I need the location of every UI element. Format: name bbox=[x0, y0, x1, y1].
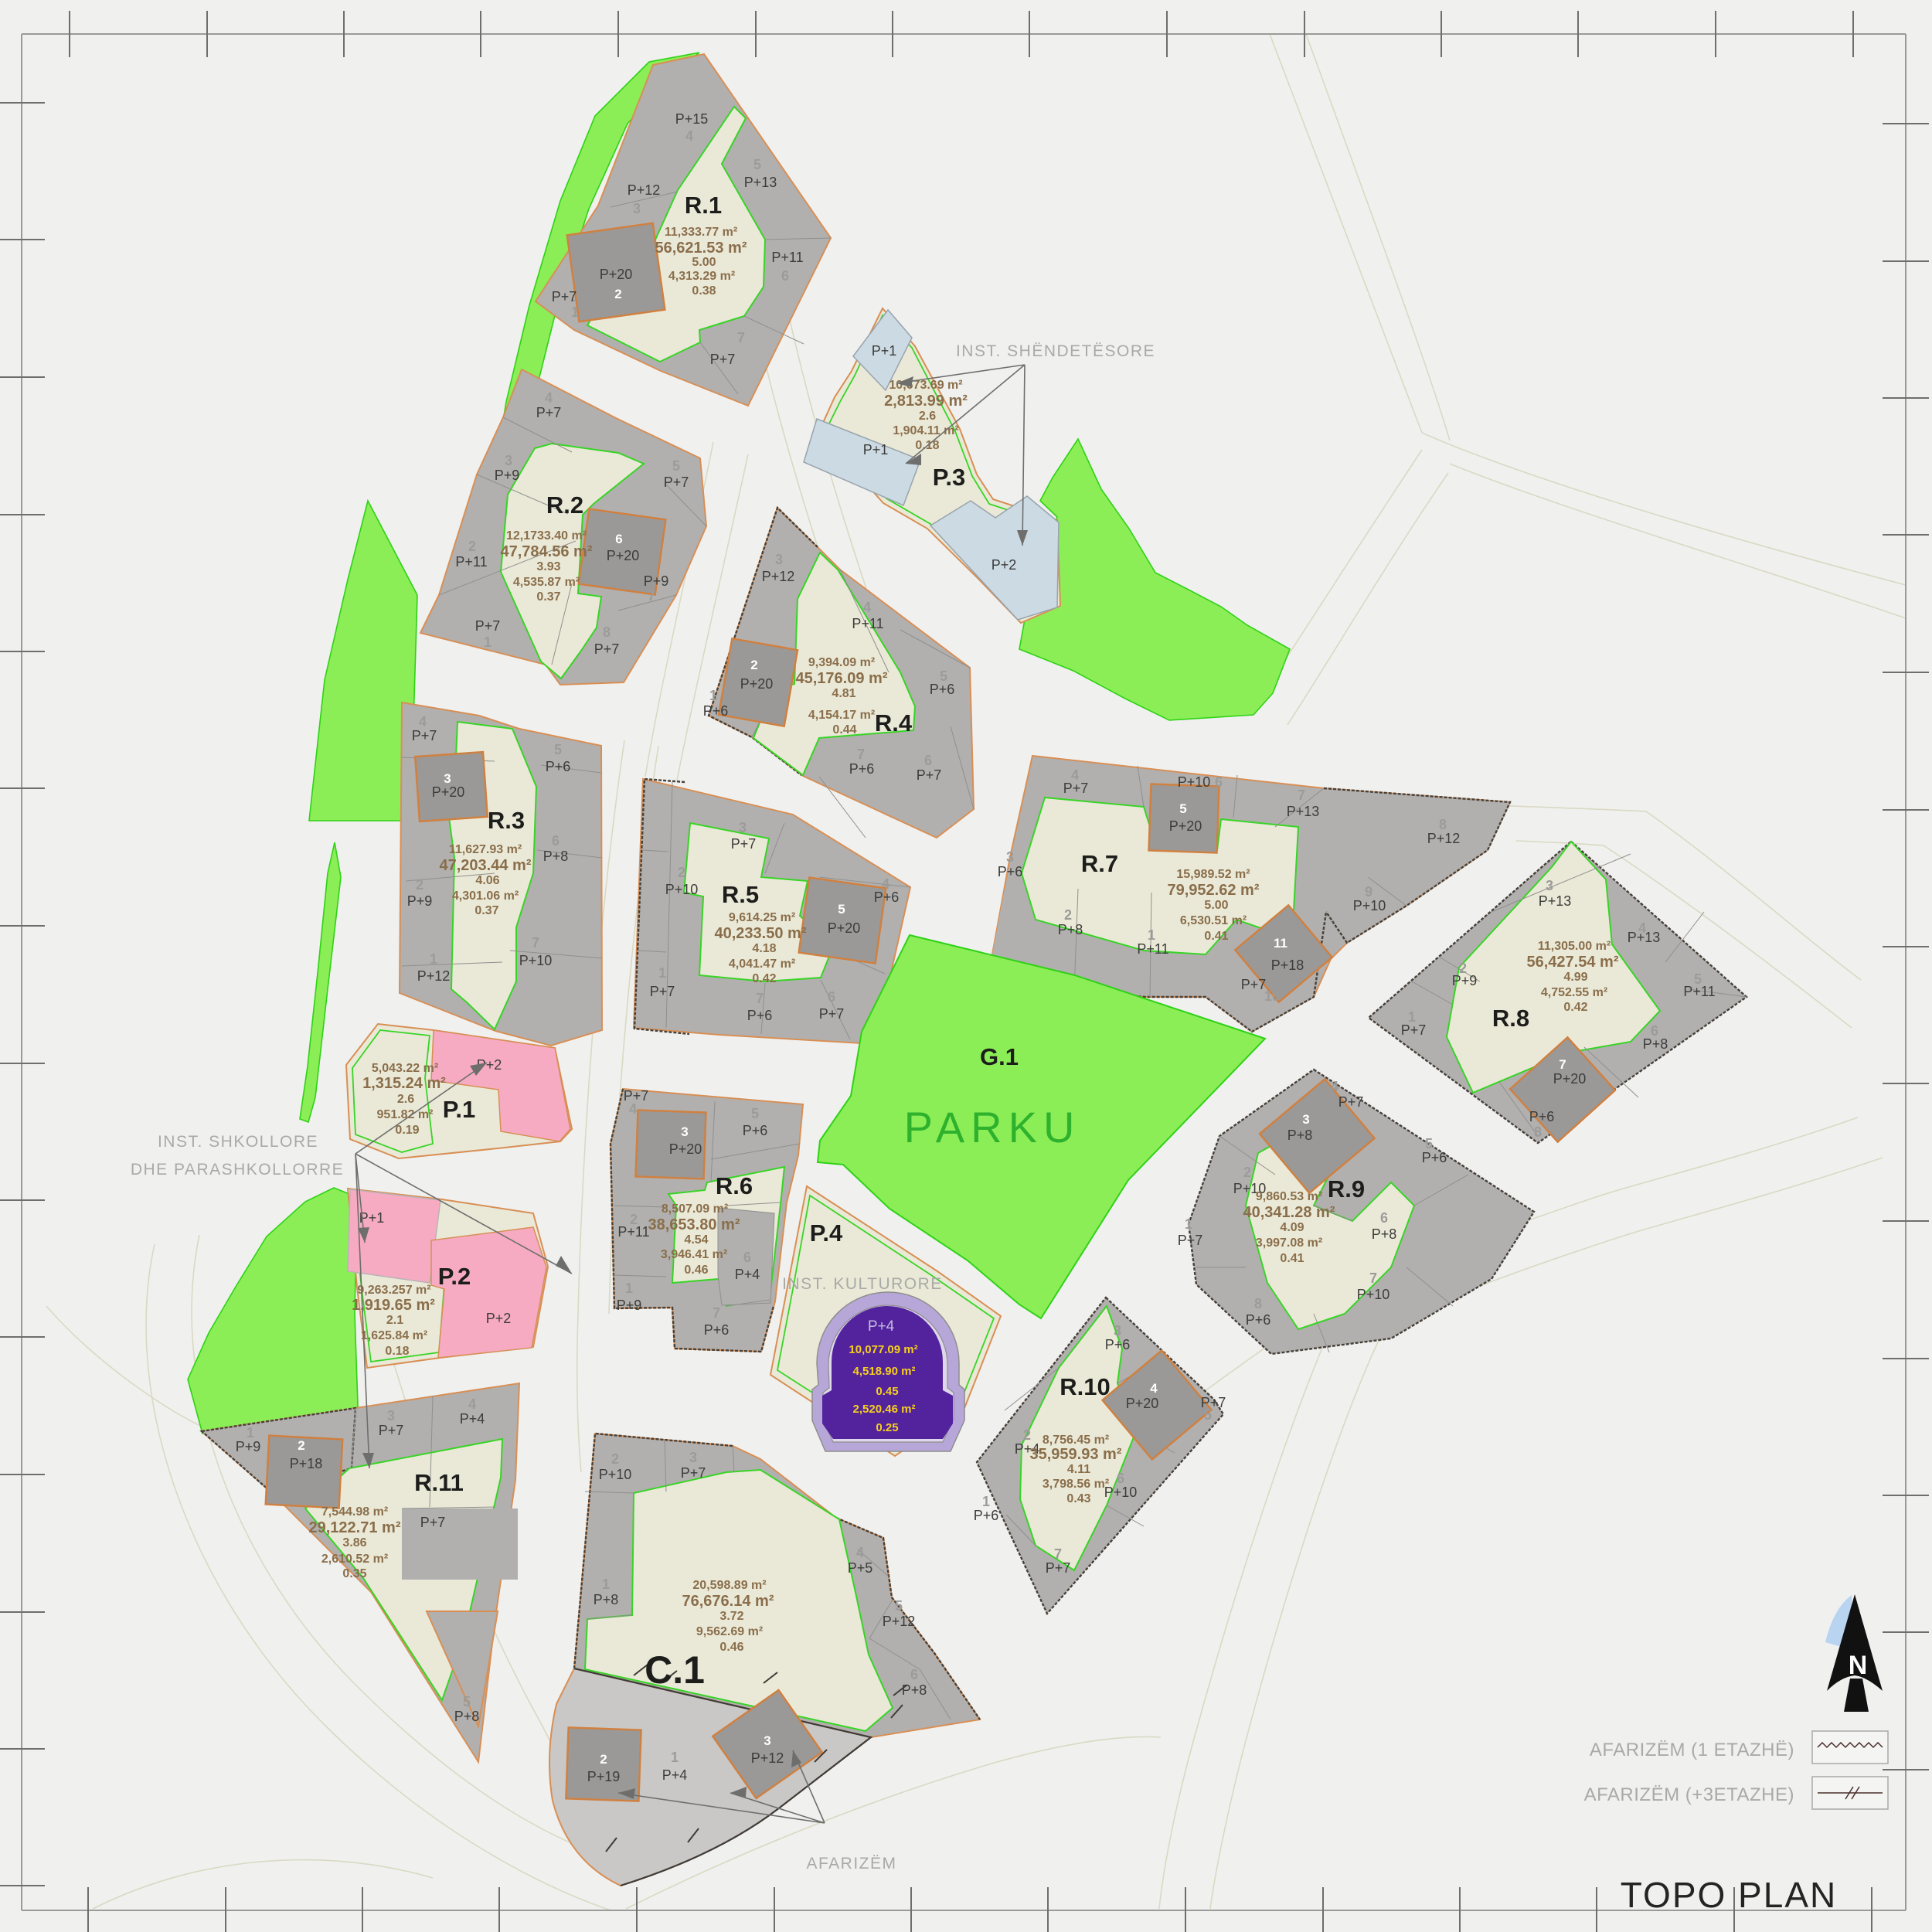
svg-text:R.11: R.11 bbox=[414, 1469, 464, 1496]
svg-text:2.6: 2.6 bbox=[919, 410, 936, 423]
svg-text:3: 3 bbox=[739, 820, 747, 835]
svg-text:R.8: R.8 bbox=[1492, 1005, 1529, 1032]
svg-text:8: 8 bbox=[1534, 1124, 1542, 1140]
svg-text:P+7: P+7 bbox=[1241, 977, 1267, 992]
svg-text:2: 2 bbox=[750, 658, 757, 672]
svg-text:9,394.09 m²: 9,394.09 m² bbox=[808, 656, 875, 669]
svg-text:P+11: P+11 bbox=[455, 554, 487, 570]
svg-text:P+7: P+7 bbox=[1063, 781, 1089, 796]
svg-text:P+6: P+6 bbox=[1246, 1312, 1271, 1328]
svg-text:P+2: P+2 bbox=[992, 557, 1017, 573]
svg-text:INST. SHËNDETËSORE: INST. SHËNDETËSORE bbox=[956, 342, 1155, 360]
svg-text:6: 6 bbox=[743, 1250, 751, 1265]
svg-text:40,233.50 m²: 40,233.50 m² bbox=[715, 925, 807, 942]
svg-text:0.37: 0.37 bbox=[536, 590, 560, 604]
svg-text:P+20: P+20 bbox=[600, 267, 633, 282]
svg-text:P+11: P+11 bbox=[1137, 941, 1168, 957]
svg-text:P+20: P+20 bbox=[740, 676, 774, 692]
svg-text:G.1: G.1 bbox=[980, 1043, 1019, 1070]
svg-text:9,860.53 m²: 9,860.53 m² bbox=[1256, 1190, 1322, 1203]
svg-text:3,946.41 m²: 3,946.41 m² bbox=[661, 1248, 727, 1261]
svg-text:4: 4 bbox=[545, 390, 553, 406]
svg-text:4,041.47 m²: 4,041.47 m² bbox=[729, 957, 795, 971]
svg-text:P+8: P+8 bbox=[902, 1682, 927, 1698]
svg-text:0.43: 0.43 bbox=[1066, 1492, 1090, 1505]
svg-text:4.09: 4.09 bbox=[1280, 1221, 1304, 1234]
svg-text:P+9: P+9 bbox=[644, 573, 669, 589]
svg-text:P.2: P.2 bbox=[438, 1263, 471, 1290]
svg-text:P+7: P+7 bbox=[664, 474, 689, 490]
svg-text:P+7: P+7 bbox=[536, 405, 562, 420]
svg-text:0.41: 0.41 bbox=[1280, 1252, 1304, 1265]
svg-text:1,625.84 m²: 1,625.84 m² bbox=[361, 1329, 427, 1342]
svg-text:P+7: P+7 bbox=[650, 984, 675, 999]
svg-text:2: 2 bbox=[1023, 1427, 1031, 1443]
svg-text:12,1733.40 m²: 12,1733.40 m² bbox=[506, 529, 587, 543]
svg-text:47,203.44 m²: 47,203.44 m² bbox=[440, 857, 532, 874]
svg-text:P+9: P+9 bbox=[236, 1439, 261, 1454]
svg-text:5.00: 5.00 bbox=[1204, 899, 1228, 912]
svg-text:P+12: P+12 bbox=[751, 1750, 784, 1766]
svg-text:6: 6 bbox=[828, 989, 835, 1005]
svg-text:P+7: P+7 bbox=[917, 767, 942, 783]
svg-text:1: 1 bbox=[247, 1425, 254, 1440]
svg-text:P+12: P+12 bbox=[762, 569, 795, 584]
svg-text:P+6: P+6 bbox=[930, 682, 955, 697]
svg-text:R.9: R.9 bbox=[1328, 1175, 1365, 1202]
svg-text:3: 3 bbox=[775, 552, 783, 567]
svg-text:4,313.29 m²: 4,313.29 m² bbox=[668, 270, 735, 283]
svg-text:P+8: P+8 bbox=[1372, 1226, 1397, 1242]
svg-text:P+6: P+6 bbox=[743, 1123, 768, 1138]
svg-text:7: 7 bbox=[857, 747, 865, 762]
svg-text:45,176.09 m²: 45,176.09 m² bbox=[796, 670, 888, 687]
svg-text:P+20: P+20 bbox=[1169, 818, 1202, 834]
svg-text:2: 2 bbox=[678, 865, 685, 880]
svg-text:1: 1 bbox=[602, 1577, 610, 1592]
svg-text:P+20: P+20 bbox=[669, 1141, 702, 1157]
svg-text:4: 4 bbox=[863, 600, 871, 615]
svg-text:INST. KULTURORE: INST. KULTURORE bbox=[782, 1275, 943, 1293]
svg-text:3: 3 bbox=[1302, 1112, 1309, 1127]
svg-text:P+13: P+13 bbox=[1539, 893, 1572, 909]
svg-text:R.4: R.4 bbox=[875, 709, 913, 736]
svg-text:TOPO PLAN: TOPO PLAN bbox=[1621, 1875, 1837, 1915]
svg-text:P+6: P+6 bbox=[1422, 1150, 1447, 1165]
svg-text:3,997.08 m²: 3,997.08 m² bbox=[1256, 1236, 1322, 1250]
svg-text:4.81: 4.81 bbox=[832, 687, 855, 700]
svg-text:2.6: 2.6 bbox=[397, 1093, 414, 1106]
svg-text:0.38: 0.38 bbox=[692, 284, 716, 298]
svg-text:8,507.09 m²: 8,507.09 m² bbox=[662, 1202, 728, 1216]
svg-text:10,673.69 m²: 10,673.69 m² bbox=[889, 379, 962, 392]
svg-text:3: 3 bbox=[681, 1124, 688, 1139]
svg-text:11: 11 bbox=[1274, 936, 1287, 951]
svg-text:6: 6 bbox=[615, 532, 622, 546]
svg-text:P+8: P+8 bbox=[543, 849, 569, 864]
svg-text:8: 8 bbox=[1439, 817, 1447, 832]
svg-text:R.5: R.5 bbox=[722, 881, 759, 908]
svg-text:4: 4 bbox=[1331, 1079, 1338, 1094]
svg-text:0.19: 0.19 bbox=[395, 1124, 419, 1137]
svg-text:4,752.55 m²: 4,752.55 m² bbox=[1541, 986, 1607, 999]
svg-text:4,301.06 m²: 4,301.06 m² bbox=[452, 889, 519, 903]
svg-text:3: 3 bbox=[764, 1733, 770, 1748]
svg-text:P+20: P+20 bbox=[1553, 1071, 1587, 1087]
svg-text:5: 5 bbox=[1204, 1407, 1212, 1423]
svg-text:7: 7 bbox=[1369, 1270, 1377, 1286]
svg-text:P+7: P+7 bbox=[379, 1423, 404, 1438]
svg-text:2.1: 2.1 bbox=[386, 1314, 403, 1327]
svg-text:0.45: 0.45 bbox=[876, 1385, 898, 1398]
svg-text:4.54: 4.54 bbox=[684, 1233, 708, 1247]
svg-text:1: 1 bbox=[982, 1494, 990, 1509]
svg-text:P+9: P+9 bbox=[617, 1298, 642, 1313]
svg-text:AFARIZËM: AFARIZËM bbox=[806, 1855, 896, 1872]
svg-text:R.6: R.6 bbox=[716, 1172, 753, 1199]
svg-text:P+7: P+7 bbox=[1401, 1022, 1427, 1038]
svg-text:P+7: P+7 bbox=[819, 1006, 845, 1022]
svg-text:0.42: 0.42 bbox=[752, 972, 776, 985]
svg-text:P+6: P+6 bbox=[998, 864, 1023, 879]
svg-text:C.1: C.1 bbox=[645, 1648, 705, 1692]
svg-text:P+12: P+12 bbox=[628, 182, 661, 198]
svg-text:P+5: P+5 bbox=[848, 1560, 873, 1576]
svg-text:0.42: 0.42 bbox=[1563, 1001, 1587, 1014]
svg-text:6: 6 bbox=[781, 268, 789, 284]
svg-text:1: 1 bbox=[571, 304, 579, 320]
svg-text:2: 2 bbox=[468, 539, 476, 554]
svg-text:8: 8 bbox=[603, 624, 611, 640]
svg-text:R.2: R.2 bbox=[546, 492, 583, 519]
svg-text:P+8: P+8 bbox=[1643, 1036, 1668, 1052]
svg-text:P+18: P+18 bbox=[290, 1456, 323, 1471]
svg-text:6: 6 bbox=[1117, 1471, 1124, 1486]
svg-text:3.86: 3.86 bbox=[342, 1536, 366, 1549]
svg-text:3.93: 3.93 bbox=[536, 560, 560, 573]
svg-text:P+20: P+20 bbox=[607, 548, 640, 563]
svg-text:5: 5 bbox=[1425, 1136, 1433, 1151]
svg-text:P+6: P+6 bbox=[974, 1508, 999, 1523]
svg-text:7: 7 bbox=[1298, 787, 1305, 803]
svg-text:29,122.71 m²: 29,122.71 m² bbox=[309, 1519, 401, 1536]
svg-text:3.72: 3.72 bbox=[719, 1610, 743, 1623]
svg-text:7: 7 bbox=[1054, 1546, 1062, 1562]
svg-text:N: N bbox=[1849, 1651, 1868, 1680]
svg-text:P+7: P+7 bbox=[1338, 1094, 1364, 1110]
svg-text:2: 2 bbox=[298, 1438, 304, 1453]
svg-text:1: 1 bbox=[484, 634, 492, 650]
svg-text:5: 5 bbox=[751, 1106, 759, 1121]
svg-text:5: 5 bbox=[463, 1694, 471, 1709]
svg-text:P+10: P+10 bbox=[599, 1467, 632, 1482]
svg-text:3: 3 bbox=[1114, 1323, 1121, 1338]
svg-text:20,598.89 m²: 20,598.89 m² bbox=[692, 1579, 766, 1592]
svg-text:0.46: 0.46 bbox=[684, 1264, 708, 1277]
svg-text:1,315.24 m²: 1,315.24 m² bbox=[362, 1075, 446, 1092]
svg-text:7: 7 bbox=[1559, 1057, 1566, 1072]
svg-text:P+9: P+9 bbox=[1452, 973, 1478, 988]
svg-text:2: 2 bbox=[416, 877, 423, 893]
svg-text:1: 1 bbox=[709, 688, 717, 703]
svg-text:5: 5 bbox=[895, 1598, 903, 1614]
svg-text:INST. SHKOLLORE: INST. SHKOLLORE bbox=[158, 1133, 318, 1151]
svg-text:5: 5 bbox=[838, 902, 845, 917]
svg-text:2: 2 bbox=[614, 287, 621, 301]
svg-text:7: 7 bbox=[532, 935, 539, 951]
svg-text:P+20: P+20 bbox=[1126, 1396, 1159, 1411]
svg-text:1: 1 bbox=[625, 1281, 633, 1296]
svg-text:P+4: P+4 bbox=[868, 1318, 895, 1335]
svg-text:P+10: P+10 bbox=[665, 882, 699, 897]
svg-text:5,043.22 m²: 5,043.22 m² bbox=[372, 1062, 438, 1075]
svg-text:40,341.28 m²: 40,341.28 m² bbox=[1243, 1204, 1335, 1221]
svg-text:4: 4 bbox=[1150, 1381, 1158, 1396]
svg-text:P+7: P+7 bbox=[1178, 1233, 1203, 1248]
svg-text:10: 10 bbox=[1264, 988, 1280, 1004]
svg-text:P+12: P+12 bbox=[883, 1614, 916, 1629]
svg-text:2: 2 bbox=[611, 1451, 619, 1467]
svg-text:11,627.93 m²: 11,627.93 m² bbox=[449, 843, 522, 856]
svg-text:2: 2 bbox=[600, 1752, 607, 1767]
svg-text:P+9: P+9 bbox=[495, 468, 520, 483]
svg-text:AFARIZËM (+3ETAZHE): AFARIZËM (+3ETAZHE) bbox=[1584, 1784, 1794, 1805]
svg-text:6: 6 bbox=[552, 833, 560, 849]
svg-text:6: 6 bbox=[924, 753, 932, 768]
svg-text:P+20: P+20 bbox=[432, 784, 465, 800]
svg-text:P+6: P+6 bbox=[703, 703, 729, 719]
svg-text:4: 4 bbox=[629, 1101, 637, 1117]
svg-text:56,427.54 m²: 56,427.54 m² bbox=[1527, 954, 1619, 971]
svg-text:2: 2 bbox=[1064, 907, 1072, 923]
svg-text:5.00: 5.00 bbox=[692, 256, 716, 269]
svg-text:15,989.52 m²: 15,989.52 m² bbox=[1176, 868, 1250, 881]
svg-text:4: 4 bbox=[419, 714, 427, 730]
svg-text:3: 3 bbox=[387, 1408, 395, 1423]
svg-text:9,562.69 m²: 9,562.69 m² bbox=[696, 1625, 763, 1638]
svg-text:1: 1 bbox=[1185, 1216, 1192, 1232]
svg-text:3: 3 bbox=[1006, 849, 1014, 865]
svg-text:4.99: 4.99 bbox=[1563, 971, 1587, 984]
svg-text:P+10: P+10 bbox=[1357, 1287, 1390, 1302]
svg-text:5: 5 bbox=[753, 157, 761, 172]
svg-text:P+10: P+10 bbox=[1178, 774, 1211, 790]
svg-text:P+6: P+6 bbox=[546, 759, 571, 774]
svg-text:P+7: P+7 bbox=[710, 352, 736, 367]
svg-text:6: 6 bbox=[910, 1667, 918, 1682]
svg-text:P+18: P+18 bbox=[1271, 957, 1304, 973]
svg-text:P+9: P+9 bbox=[407, 893, 433, 909]
svg-text:4.06: 4.06 bbox=[475, 874, 499, 887]
svg-text:R.7: R.7 bbox=[1081, 850, 1118, 877]
svg-text:P+8: P+8 bbox=[1287, 1128, 1313, 1143]
svg-text:1,919.65 m²: 1,919.65 m² bbox=[352, 1297, 435, 1314]
svg-text:1: 1 bbox=[671, 1750, 679, 1765]
svg-text:4: 4 bbox=[856, 1545, 864, 1560]
svg-text:5: 5 bbox=[672, 458, 680, 474]
svg-text:P+6: P+6 bbox=[704, 1322, 730, 1338]
svg-text:P+10: P+10 bbox=[1353, 898, 1386, 913]
svg-text:P+8: P+8 bbox=[1058, 922, 1083, 937]
svg-text:P+10: P+10 bbox=[519, 953, 553, 968]
svg-text:P.4: P.4 bbox=[810, 1219, 843, 1247]
svg-text:7: 7 bbox=[648, 588, 655, 604]
svg-text:56,621.53 m²: 56,621.53 m² bbox=[655, 240, 747, 257]
svg-text:2,813.99 m²: 2,813.99 m² bbox=[884, 393, 968, 410]
svg-text:DHE PARASHKOLLORRE: DHE PARASHKOLLORRE bbox=[131, 1161, 344, 1179]
svg-text:8: 8 bbox=[1254, 1296, 1262, 1311]
svg-text:P+13: P+13 bbox=[1287, 804, 1320, 819]
svg-text:P+7: P+7 bbox=[594, 641, 620, 657]
svg-text:7,544.98 m²: 7,544.98 m² bbox=[321, 1505, 388, 1519]
svg-text:P+7: P+7 bbox=[420, 1515, 446, 1530]
svg-text:4.18: 4.18 bbox=[752, 942, 776, 955]
svg-text:P+6: P+6 bbox=[849, 761, 875, 777]
svg-text:P+19: P+19 bbox=[587, 1769, 621, 1784]
svg-text:9,614.25 m²: 9,614.25 m² bbox=[729, 911, 795, 924]
svg-text:P+7: P+7 bbox=[552, 289, 577, 304]
svg-text:3: 3 bbox=[1546, 878, 1553, 893]
svg-text:P+6: P+6 bbox=[1529, 1109, 1555, 1124]
svg-text:35,959.93 m²: 35,959.93 m² bbox=[1030, 1446, 1122, 1463]
svg-text:P+7: P+7 bbox=[681, 1465, 706, 1481]
svg-text:5: 5 bbox=[554, 742, 562, 757]
svg-text:9,263.257 m²: 9,263.257 m² bbox=[357, 1284, 430, 1297]
svg-text:4: 4 bbox=[468, 1396, 476, 1412]
svg-text:5: 5 bbox=[1179, 801, 1186, 816]
svg-text:1: 1 bbox=[430, 951, 437, 967]
svg-text:11,305.00 m²: 11,305.00 m² bbox=[1538, 940, 1611, 953]
svg-text:38,653.80 m²: 38,653.80 m² bbox=[648, 1216, 740, 1233]
svg-text:0.18: 0.18 bbox=[385, 1345, 409, 1358]
svg-text:1: 1 bbox=[658, 965, 666, 981]
svg-text:P+7: P+7 bbox=[731, 836, 757, 852]
svg-text:P+7: P+7 bbox=[475, 618, 501, 634]
svg-text:4.11: 4.11 bbox=[1067, 1463, 1090, 1476]
svg-text:8,756.45 m²: 8,756.45 m² bbox=[1043, 1434, 1109, 1447]
svg-text:P.1: P.1 bbox=[443, 1096, 476, 1123]
svg-text:2,610.52 m²: 2,610.52 m² bbox=[321, 1553, 388, 1566]
svg-text:P+11: P+11 bbox=[852, 616, 883, 631]
svg-text:P+1: P+1 bbox=[863, 442, 889, 457]
svg-text:0.35: 0.35 bbox=[342, 1567, 366, 1580]
svg-text:PARKU: PARKU bbox=[904, 1103, 1081, 1151]
svg-text:0.25: 0.25 bbox=[876, 1421, 898, 1434]
svg-text:2: 2 bbox=[1243, 1165, 1251, 1180]
svg-text:P+4: P+4 bbox=[662, 1767, 688, 1783]
svg-text:0.37: 0.37 bbox=[474, 904, 498, 917]
svg-text:11,333.77 m²: 11,333.77 m² bbox=[665, 226, 737, 239]
svg-text:R.3: R.3 bbox=[488, 807, 525, 834]
svg-text:P.3: P.3 bbox=[933, 464, 966, 491]
svg-text:6,530.51 m²: 6,530.51 m² bbox=[1180, 914, 1247, 927]
svg-text:P+13: P+13 bbox=[744, 175, 777, 190]
svg-text:3,798.56 m²: 3,798.56 m² bbox=[1043, 1478, 1109, 1491]
svg-text:3: 3 bbox=[505, 453, 512, 468]
svg-text:1,904.11 m²: 1,904.11 m² bbox=[893, 424, 958, 437]
svg-text:79,952.62 m²: 79,952.62 m² bbox=[1168, 882, 1260, 899]
svg-text:P+12: P+12 bbox=[1427, 831, 1461, 846]
svg-text:R.1: R.1 bbox=[685, 192, 722, 219]
svg-text:7: 7 bbox=[737, 330, 745, 345]
svg-text:4,518.90 m²: 4,518.90 m² bbox=[853, 1365, 916, 1378]
svg-text:4,535.87 m²: 4,535.87 m² bbox=[513, 576, 580, 589]
svg-text:P+12: P+12 bbox=[417, 968, 451, 984]
svg-text:P+11: P+11 bbox=[771, 250, 803, 265]
svg-text:1: 1 bbox=[1148, 927, 1155, 943]
svg-text:P+6: P+6 bbox=[874, 889, 900, 905]
svg-text:P+8: P+8 bbox=[454, 1709, 480, 1724]
svg-text:P+11: P+11 bbox=[617, 1224, 649, 1240]
svg-text:P+6: P+6 bbox=[1105, 1337, 1131, 1352]
svg-text:P+11: P+11 bbox=[1683, 984, 1715, 999]
svg-text:P+4: P+4 bbox=[460, 1411, 485, 1427]
svg-text:6: 6 bbox=[1380, 1210, 1388, 1226]
svg-text:4: 4 bbox=[685, 128, 693, 144]
svg-text:R.10: R.10 bbox=[1060, 1373, 1110, 1400]
svg-text:0.44: 0.44 bbox=[832, 723, 856, 736]
svg-text:7: 7 bbox=[756, 991, 764, 1006]
svg-text:76,676.14 m²: 76,676.14 m² bbox=[682, 1593, 774, 1610]
svg-text:P+7: P+7 bbox=[412, 728, 437, 743]
svg-text:0.41: 0.41 bbox=[1204, 930, 1228, 943]
svg-text:10,077.09 m²: 10,077.09 m² bbox=[849, 1343, 917, 1356]
svg-text:0.46: 0.46 bbox=[719, 1641, 743, 1654]
svg-text:P+1: P+1 bbox=[872, 343, 897, 359]
svg-text:P+15: P+15 bbox=[675, 111, 709, 127]
svg-text:4,154.17 m²: 4,154.17 m² bbox=[808, 709, 875, 722]
svg-text:P+7: P+7 bbox=[1046, 1560, 1071, 1576]
svg-text:3: 3 bbox=[689, 1450, 697, 1465]
svg-text:P+20: P+20 bbox=[828, 920, 861, 936]
svg-text:47,784.56 m²: 47,784.56 m² bbox=[501, 543, 593, 560]
svg-text:2,520.46 m²: 2,520.46 m² bbox=[853, 1403, 916, 1416]
svg-text:P+8: P+8 bbox=[594, 1592, 619, 1607]
svg-text:7: 7 bbox=[713, 1305, 720, 1321]
svg-text:6: 6 bbox=[1215, 774, 1223, 790]
svg-text:P+4: P+4 bbox=[735, 1267, 760, 1282]
svg-text:P+6: P+6 bbox=[747, 1008, 773, 1023]
svg-text:9: 9 bbox=[1365, 884, 1372, 900]
svg-text:P+2: P+2 bbox=[486, 1311, 512, 1326]
svg-text:AFARIZËM (1 ETAZHË): AFARIZËM (1 ETAZHË) bbox=[1590, 1740, 1794, 1760]
svg-text:3: 3 bbox=[633, 201, 641, 216]
svg-text:P+13: P+13 bbox=[1628, 930, 1661, 945]
